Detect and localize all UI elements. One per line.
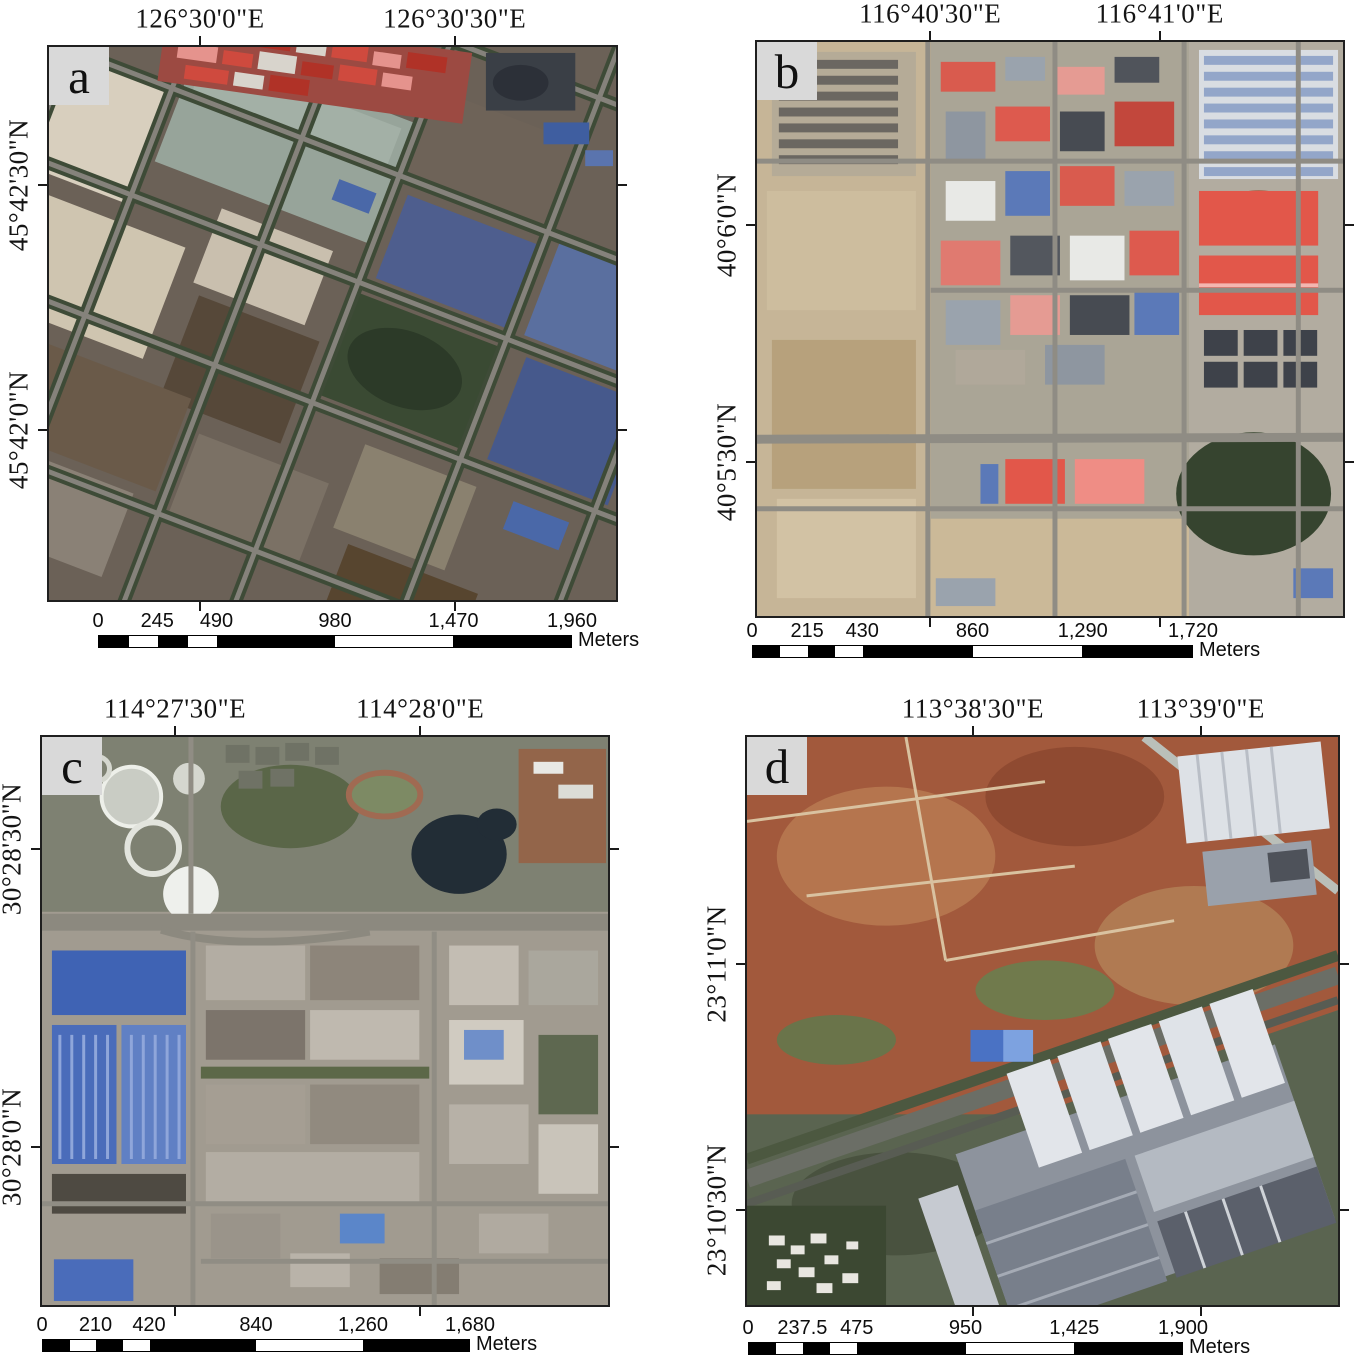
- graticule-tick: [454, 36, 456, 45]
- scalebar-tick-label: 210: [79, 1314, 112, 1337]
- scalebar-segment: [96, 1340, 123, 1351]
- longitude-label: 113°38'30"E: [902, 694, 1044, 725]
- graticule-tick: [1340, 963, 1349, 965]
- scalebar-segment: [70, 1340, 97, 1351]
- latitude-label: 23°10'30"N: [702, 1144, 733, 1276]
- scalebar-tick-label: 245: [141, 610, 174, 633]
- graticule-tick: [746, 224, 755, 226]
- scalebar-segment: [803, 1343, 830, 1354]
- longitude-label: 113°39'0"E: [1137, 694, 1265, 725]
- scalebar-bar: [42, 1339, 470, 1352]
- graticule-tick: [419, 1307, 421, 1316]
- map-frame[interactable]: a: [47, 45, 618, 602]
- scalebar-bar: [98, 635, 572, 648]
- map-frame[interactable]: c: [40, 735, 610, 1307]
- latitude-label: 30°28'0"N: [0, 1088, 28, 1206]
- graticule-tick: [419, 726, 421, 735]
- scalebar-tick-label: 0: [92, 610, 103, 633]
- scalebar-tick-label: 420: [132, 1314, 165, 1337]
- scalebar-tick-label: 950: [949, 1317, 982, 1340]
- scalebar-unit: Meters: [1189, 1336, 1250, 1359]
- scalebar-tick-label: 840: [239, 1314, 272, 1337]
- scalebar-unit: Meters: [578, 629, 639, 652]
- graticule-tick: [736, 963, 745, 965]
- graticule-tick: [929, 618, 931, 627]
- scalebar-tick-label: 430: [846, 620, 879, 643]
- map-panel-d: 113°38'30"E 113°39'0"E 23°11'0"N 23°10'3…: [678, 678, 1355, 1363]
- graticule-tick: [174, 1307, 176, 1316]
- panel-letter-label: a: [49, 47, 109, 105]
- scalebar-unit: Meters: [476, 1333, 537, 1356]
- scalebar-unit: Meters: [1199, 639, 1260, 662]
- scalebar-segment: [966, 1343, 1074, 1354]
- latitude-label: 23°11'0"N: [702, 905, 733, 1022]
- scale-bar: 02454909801,4701,960 Meters: [98, 610, 572, 652]
- scale-bar: 0237.54759501,4251,900 Meters: [748, 1317, 1183, 1359]
- scalebar-segment: [256, 1340, 363, 1351]
- graticule-tick: [746, 461, 755, 463]
- scalebar-segment: [453, 636, 571, 647]
- scalebar-segment: [335, 636, 453, 647]
- graticule-tick: [618, 184, 627, 186]
- graticule-tick: [972, 1307, 974, 1316]
- latitude-label: 40°6'0"N: [712, 173, 743, 277]
- graticule-tick: [174, 726, 176, 735]
- graticule-tick: [1200, 726, 1202, 735]
- graticule-tick: [972, 726, 974, 735]
- scale-bar: 02104208401,2601,680 Meters: [42, 1314, 470, 1356]
- satellite-image: [757, 42, 1343, 616]
- scalebar-segment: [749, 1343, 776, 1354]
- scalebar-bar: [748, 1342, 1183, 1355]
- graticule-tick: [1159, 618, 1161, 627]
- scalebar-segment: [1074, 1343, 1182, 1354]
- scalebar-tick-label: 0: [746, 620, 757, 643]
- scalebar-segment: [363, 1340, 470, 1351]
- map-panel-b: 116°40'30"E 116°41'0"E 40°6'0"N 40°5'30"…: [678, 0, 1355, 677]
- scalebar-segment: [123, 1340, 150, 1351]
- satellite-image: [42, 737, 608, 1305]
- longitude-label: 126°30'30"E: [383, 4, 526, 35]
- scalebar-segment: [776, 1343, 803, 1354]
- graticule-tick: [610, 848, 619, 850]
- graticule-tick: [618, 429, 627, 431]
- figure-four-satellite-maps: 126°30'0"E 126°30'30"E 45°42'30"N 45°42'…: [0, 0, 1355, 1363]
- longitude-label: 126°30'0"E: [135, 4, 264, 35]
- graticule-tick: [1159, 31, 1161, 40]
- longitude-label: 116°40'30"E: [859, 0, 1001, 30]
- scalebar-tick-label: 1,260: [338, 1314, 388, 1337]
- longitude-label: 114°27'30"E: [104, 694, 246, 725]
- graticule-tick: [1345, 224, 1354, 226]
- graticule-tick: [610, 1146, 619, 1148]
- scalebar-tick-label: 1,290: [1058, 620, 1108, 643]
- scalebar-segment: [808, 646, 835, 657]
- scalebar-bar: [752, 645, 1193, 658]
- graticule-tick: [929, 31, 931, 40]
- graticule-tick: [31, 848, 40, 850]
- scalebar-tick-label: 475: [840, 1317, 873, 1340]
- scalebar-segment: [830, 1343, 857, 1354]
- graticule-tick: [199, 602, 201, 611]
- map-panel-c: 114°27'30"E 114°28'0"E 30°28'30"N 30°28'…: [0, 678, 677, 1363]
- scalebar-segment: [753, 646, 780, 657]
- graticule-tick: [736, 1209, 745, 1211]
- scalebar-tick-label: 215: [790, 620, 823, 643]
- scalebar-tick-label: 1,425: [1049, 1317, 1099, 1340]
- graticule-tick: [31, 1146, 40, 1148]
- scalebar-segment: [217, 636, 335, 647]
- satellite-image: [747, 737, 1338, 1305]
- longitude-label: 116°41'0"E: [1096, 0, 1224, 30]
- scalebar-segment: [99, 636, 129, 647]
- scalebar-segment: [835, 646, 862, 657]
- latitude-label: 45°42'30"N: [4, 119, 35, 251]
- panel-letter-label: b: [757, 42, 817, 100]
- map-frame[interactable]: d: [745, 735, 1340, 1307]
- scalebar-segment: [863, 646, 973, 657]
- scalebar-segment: [1082, 646, 1192, 657]
- graticule-tick: [199, 36, 201, 45]
- scalebar-tick-label: 490: [200, 610, 233, 633]
- panel-letter-label: c: [42, 737, 102, 795]
- latitude-label: 45°42'0"N: [4, 371, 35, 489]
- scalebar-tick-label: 980: [318, 610, 351, 633]
- latitude-label: 40°5'30"N: [712, 403, 743, 521]
- scalebar-segment: [188, 636, 218, 647]
- scalebar-segment: [129, 636, 159, 647]
- graticule-tick: [38, 184, 47, 186]
- scalebar-tick-label: 1,470: [428, 610, 478, 633]
- satellite-image: [49, 47, 616, 600]
- graticule-tick: [454, 602, 456, 611]
- graticule-tick: [1200, 1307, 1202, 1316]
- scalebar-tick-label: 237.5: [777, 1317, 827, 1340]
- scalebar-segment: [150, 1340, 257, 1351]
- longitude-label: 114°28'0"E: [356, 694, 484, 725]
- graticule-tick: [1345, 461, 1354, 463]
- scalebar-segment: [857, 1343, 965, 1354]
- scalebar-tick-label: 0: [36, 1314, 47, 1337]
- scalebar-segment: [780, 646, 807, 657]
- graticule-tick: [1340, 1209, 1349, 1211]
- scalebar-segment: [43, 1340, 70, 1351]
- graticule-tick: [38, 429, 47, 431]
- scalebar-tick-label: 860: [956, 620, 989, 643]
- scalebar-segment: [158, 636, 188, 647]
- scalebar-segment: [973, 646, 1083, 657]
- scale-bar: 02154308601,2901,720 Meters: [752, 620, 1193, 662]
- scalebar-tick-label: 0: [742, 1317, 753, 1340]
- latitude-label: 30°28'30"N: [0, 783, 28, 915]
- map-frame[interactable]: b: [755, 40, 1345, 618]
- panel-letter-label: d: [747, 737, 807, 795]
- map-panel-a: 126°30'0"E 126°30'30"E 45°42'30"N 45°42'…: [0, 0, 677, 677]
